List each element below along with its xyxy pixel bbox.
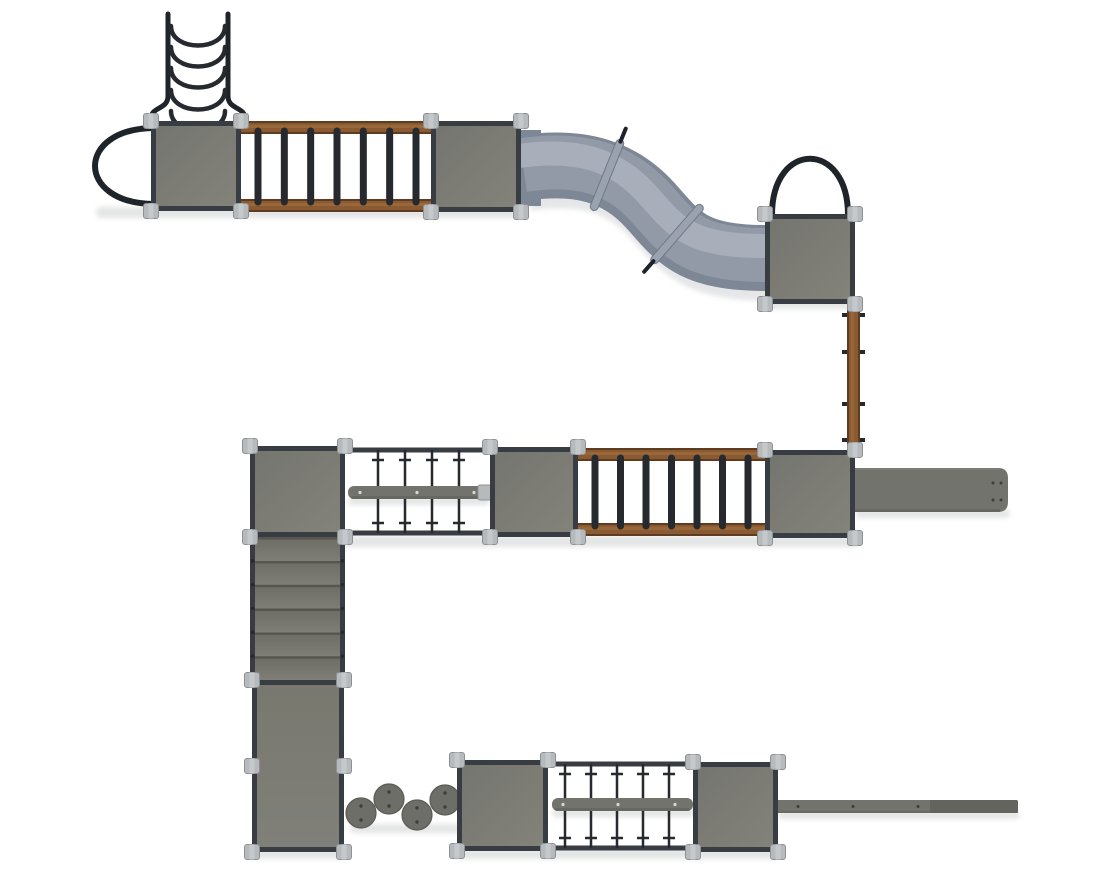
climber-rail [151, 14, 168, 119]
platform-deck [768, 217, 852, 301]
platform-deck [253, 449, 342, 534]
overhead-wood-ladder-top [241, 121, 433, 212]
collar-clamp-tab [620, 129, 625, 142]
beam-screw [852, 805, 855, 808]
stepping-stone [374, 784, 404, 814]
climber-curved-rung [171, 68, 225, 88]
platform-bottom-left [450, 753, 556, 859]
playground-structure-svg [0, 0, 1110, 879]
platform-deck [768, 453, 852, 535]
rail-bolt [341, 654, 345, 658]
straight-slide [855, 468, 1008, 512]
beam-screw [472, 491, 475, 494]
stepping-stone [346, 798, 376, 828]
beam-screw [917, 805, 920, 808]
playground-render-stage [0, 0, 1110, 879]
climber-curved-rung [171, 26, 225, 46]
long-balance-beam [777, 800, 1018, 813]
beam-screw [358, 491, 361, 494]
beam-end-bracket [478, 485, 492, 500]
ramp-panel [245, 673, 352, 860]
platform-mid-right [758, 443, 863, 546]
stairs [251, 537, 345, 680]
platform-deck [460, 763, 545, 848]
collar-clamp-tab [644, 261, 653, 272]
rail-bolt [251, 559, 255, 563]
balance-beam-mid [348, 486, 488, 499]
entry-arch-top [772, 159, 848, 215]
balance-beam-bottom [552, 798, 693, 811]
entry-arch-bar [772, 159, 848, 215]
rail-bolt [251, 631, 255, 635]
platform-mid-center [483, 440, 586, 545]
stepping-stone [402, 800, 432, 830]
ladder-rung-end [860, 438, 865, 442]
platform-deck [696, 765, 775, 849]
stair-step [255, 656, 340, 680]
ladder-rung-end [860, 350, 865, 354]
ladder-rung-end [842, 350, 847, 354]
overhead-wood-ladder-mid [578, 448, 765, 536]
rail-bolt [341, 583, 345, 587]
rail-bolt [341, 607, 345, 611]
platform-mid-left [243, 439, 353, 545]
ladder-rung-end [842, 313, 847, 317]
stair-step [255, 561, 340, 585]
curved-rung-climber [151, 14, 245, 131]
platform-deck [154, 124, 238, 208]
stair-step [255, 632, 340, 656]
climber-rail [228, 14, 245, 119]
slide-screw [1000, 482, 1003, 485]
panel-deck [255, 683, 341, 849]
platform-bottom-right [686, 755, 786, 860]
stair-step [255, 537, 340, 561]
entry-arch-left [95, 128, 155, 204]
vertical-wood-ladder [842, 303, 865, 452]
beam-screw [673, 803, 676, 806]
climber-curved-rung [171, 47, 225, 67]
tunnel-slide [519, 127, 770, 274]
rail-bolt [251, 654, 255, 658]
beam-screw [616, 803, 619, 806]
stair-step [255, 609, 340, 633]
rail-bolt [251, 607, 255, 611]
ladder-rung-end [860, 402, 865, 406]
platform-slide-top [758, 207, 863, 312]
rail-bolt [341, 559, 345, 563]
beam-screw [561, 803, 564, 806]
slide-screw [992, 499, 995, 502]
ladder-rung-end [842, 438, 847, 442]
platform-deck [434, 124, 518, 209]
slide-screw [992, 482, 995, 485]
climber-curved-rung [171, 90, 225, 110]
platform-deck [493, 450, 575, 534]
slide-screw [1000, 499, 1003, 502]
beam-screw [415, 491, 418, 494]
platform-top-left [144, 114, 249, 219]
stepping-stone [430, 785, 460, 815]
rail-bolt [251, 583, 255, 587]
entry-arch-bar [95, 128, 155, 204]
ladder-rung-end [842, 402, 847, 406]
beam-screw [797, 805, 800, 808]
stair-step [255, 585, 340, 609]
ladder-rung-end [860, 313, 865, 317]
rail-bolt [341, 631, 345, 635]
stepping-stones [346, 784, 460, 830]
platform-top-mid [424, 114, 529, 220]
slide-bed [855, 468, 1008, 512]
